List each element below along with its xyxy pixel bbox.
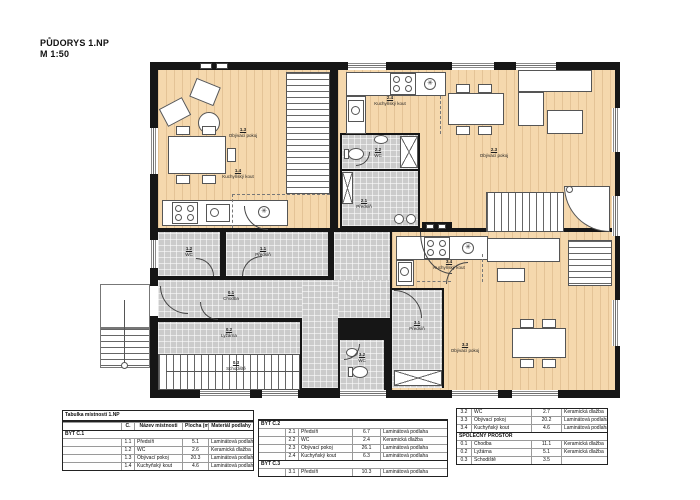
staircase-rail-line <box>166 371 300 372</box>
table-cell: Laminátová podlaha <box>561 425 607 432</box>
table-cell: Laminátová podlaha <box>561 417 607 424</box>
room-table-byt2-byt3: BYT Č.22.1Předsíň6.7Laminátová podlaha2.… <box>258 419 448 477</box>
table-cell: WC <box>134 447 182 454</box>
room-label: 3.3Obývací pokoj <box>433 342 497 353</box>
room-label: 2.4Kuchyňský kout <box>358 95 422 106</box>
stove-burner <box>175 214 182 221</box>
table-cell <box>63 463 121 470</box>
table-cell: Laminátová podlaha <box>380 469 447 476</box>
room-name: Předsíň <box>356 204 372 209</box>
table-cell: Kuchyňský kout <box>298 453 352 460</box>
stove-burner <box>393 76 400 83</box>
stove-burner <box>393 85 400 92</box>
room-name: Schodiště <box>226 366 246 371</box>
stove-burner <box>187 214 194 221</box>
table-section-row: BYT Č.1 <box>63 430 253 438</box>
table-section-row: BYT Č.3 <box>259 460 447 468</box>
room-name: Kuchyňský kout <box>222 174 254 179</box>
table-row: 3.1Předsíň10.3Laminátová podlaha <box>259 468 447 476</box>
table-row: 2.2WC2.4Keramická dlažba <box>259 436 447 444</box>
sink-bowl <box>210 208 219 217</box>
room-name: Obývací pokoj <box>480 153 509 158</box>
room-name: Předsíň <box>409 326 425 331</box>
table-row: 2.3Obývací pokoj26.1Laminátová podlaha <box>259 444 447 452</box>
table-cell: Předsíň <box>134 439 182 446</box>
stove-burner <box>187 205 194 212</box>
table-cell: Č. <box>121 423 134 430</box>
table-section-row: SPOLEČNÝ PROSTOR <box>457 432 607 440</box>
sofa <box>487 238 560 262</box>
table-cell: 3.2 <box>457 409 471 416</box>
table-cell: Kuchyňský kout <box>471 425 531 432</box>
sink-bowl <box>400 267 409 276</box>
washing-machine <box>394 214 404 224</box>
chair <box>542 319 556 328</box>
table-cell: 20.2 <box>531 417 561 424</box>
window <box>516 62 556 70</box>
table-row: 1.1Předsíň5.1Laminátová podlaha <box>63 438 253 446</box>
chair <box>176 175 190 184</box>
kitchen-zone-dash <box>482 254 483 282</box>
chimney-flue <box>426 224 434 229</box>
staircase-byt2 <box>486 192 564 232</box>
table-cell: 1.2 <box>121 447 134 454</box>
table-cell: Obývací pokoj <box>134 455 182 462</box>
chair <box>456 126 470 135</box>
table-section-label: BYT Č.2 <box>259 421 447 428</box>
stove-burner <box>405 76 412 83</box>
sofa-chaise <box>518 92 544 126</box>
room-name: Chodba <box>223 296 239 301</box>
table-section-label: SPOLEČNÝ PROSTOR <box>457 433 607 440</box>
table-cell: Keramická dlažba <box>561 449 607 456</box>
table-cell: Předsíň <box>298 469 352 476</box>
table-cell <box>561 457 607 464</box>
table-row: 0.3Schodiště3.5 <box>457 456 607 464</box>
stair-post <box>566 186 573 193</box>
table-row: 1.4Kuchyňský kout4.6Laminátová podlaha <box>63 462 253 470</box>
window <box>612 196 620 236</box>
kitchen-zone-dash <box>232 194 233 228</box>
window <box>150 128 158 174</box>
table-cell: 0.3 <box>457 457 471 464</box>
table-row: 1.3Obývací pokoj20.3Laminátová podlaha <box>63 454 253 462</box>
table-cell: Kuchyňský kout <box>134 463 182 470</box>
table-cell: 10.3 <box>352 469 380 476</box>
room-label: 3.1Předsíň <box>385 320 449 331</box>
table-cell: 4.6 <box>531 425 561 432</box>
table-cell <box>259 469 285 476</box>
table-row: 1.2WC2.6Keramická dlažba <box>63 446 253 454</box>
corridor-floor-south <box>302 282 338 388</box>
table-row: 3.4Kuchyňský kout4.6Laminátová podlaha <box>457 424 607 432</box>
room-name: Obývací pokoj <box>451 348 480 353</box>
table-cell: Keramická dlažba <box>561 409 607 416</box>
table-cell: 2.3 <box>285 445 298 452</box>
toilet-tank <box>348 367 353 377</box>
dining-table <box>448 93 504 125</box>
table-cell: Obývací pokoj <box>471 417 531 424</box>
table-cell <box>259 437 285 444</box>
table-cell: 5.1 <box>531 449 561 456</box>
table-section-label: BYT Č.3 <box>259 461 447 468</box>
stove-burner <box>405 85 412 92</box>
staircase-core-top <box>286 72 330 194</box>
table-row: 3.2WC2.7Keramická dlažba <box>457 409 607 416</box>
chair <box>542 359 556 368</box>
table-cell: 2.1 <box>285 429 298 436</box>
table-cell: 0.2 <box>457 449 471 456</box>
table-cell <box>259 453 285 460</box>
table-cell: 4.6 <box>182 463 208 470</box>
table-row: 0.2Lyžárna5.1Keramická dlažba <box>457 448 607 456</box>
room-name: WC <box>374 153 382 158</box>
room-name: Kuchyňský kout <box>433 265 465 270</box>
table-cell: WC <box>471 409 531 416</box>
table-cell: 0.1 <box>457 441 471 448</box>
table-cell: Lyžárna <box>471 449 531 456</box>
chimney-flue <box>216 63 228 69</box>
table-cell: Laminátová podlaha <box>208 439 253 446</box>
entrance-arrow-base <box>121 362 128 369</box>
room-label: 3.4Kuchyňský kout <box>417 259 481 270</box>
entrance-arrow-line <box>124 300 125 364</box>
table-cell: 1.1 <box>121 439 134 446</box>
window <box>200 390 250 398</box>
chair <box>176 126 190 135</box>
room-table-byt1: Tabulka místností 1.NPČ.Název místnostiP… <box>62 410 254 471</box>
table-cell: Plocha (m2) <box>182 423 208 430</box>
window <box>348 62 386 70</box>
table-cell: Keramická dlažba <box>380 437 447 444</box>
table-cell: Materiál podlahy <box>208 423 253 430</box>
washing-machine <box>406 214 416 224</box>
table-cell: 26.1 <box>352 445 380 452</box>
table-cell <box>63 455 121 462</box>
table-section-row: BYT Č.2 <box>259 420 447 428</box>
table-cell <box>259 429 285 436</box>
table-title: Tabulka místností 1.NP <box>63 411 253 422</box>
chair <box>520 319 534 328</box>
table-cell <box>63 447 121 454</box>
table-cell: Chodba <box>471 441 531 448</box>
table-cell: 3.3 <box>457 417 471 424</box>
room-label: 0.1Chodba <box>199 290 263 301</box>
window <box>512 390 558 398</box>
chair <box>478 126 492 135</box>
table-cell: 20.3 <box>182 455 208 462</box>
dining-table <box>512 328 566 358</box>
room-name: Kuchyňský kout <box>374 101 406 106</box>
table-cell: Laminátová podlaha <box>208 455 253 462</box>
room-name: Předsíň <box>255 252 271 257</box>
table-cell: 3.4 <box>457 425 471 432</box>
room-name: Lyžárna <box>221 333 237 338</box>
room-table-byt3-common: 3.2WC2.7Keramická dlažba3.3Obývací pokoj… <box>456 408 608 465</box>
stove-burner <box>175 205 182 212</box>
toilet <box>352 366 368 378</box>
table-cell: 2.6 <box>182 447 208 454</box>
window <box>340 390 386 398</box>
table-cell: Obývací pokoj <box>298 445 352 452</box>
chimney-flue <box>200 63 212 69</box>
corridor-floor-main <box>158 280 390 318</box>
room-label: 0.2Lyžárna <box>197 327 261 338</box>
table-cell <box>63 439 121 446</box>
table-cell: Laminátová podlaha <box>380 453 447 460</box>
sofa <box>518 70 592 92</box>
window <box>612 300 620 346</box>
table-cell: Keramická dlažba <box>208 447 253 454</box>
table-cell: 1.3 <box>121 455 134 462</box>
table-row: 3.3Obývací pokoj20.2Laminátová podlaha <box>457 416 607 424</box>
wardrobe <box>394 370 442 386</box>
room-label: 3.2WC <box>330 352 394 363</box>
table-section-label: BYT Č.1 <box>63 431 253 438</box>
table-cell: Název místnosti <box>134 423 182 430</box>
washbasin <box>374 135 388 144</box>
boiler-icon: ✳ <box>462 242 474 254</box>
staircase-byt3 <box>568 240 612 286</box>
boiler-icon: ✳ <box>424 78 436 90</box>
table-row: 0.1Chodba11.1Keramická dlažba <box>457 440 607 448</box>
table-cell: 2.2 <box>285 437 298 444</box>
window <box>452 390 498 398</box>
kitchen-zone-dash <box>232 194 330 195</box>
entrance-opening <box>150 286 158 316</box>
sink-bowl <box>351 106 360 115</box>
coffee-table <box>547 110 583 134</box>
table-cell: 3.5 <box>531 457 561 464</box>
table-cell: 1.4 <box>121 463 134 470</box>
table-header-row: Č.Název místnostiPlocha (m2)Materiál pod… <box>63 422 253 430</box>
floorplan-sheet: PŮDORYS 1.NP M 1:50 <box>0 0 700 500</box>
kitchen-zone-dash <box>440 96 441 134</box>
table-cell: Schodiště <box>471 457 531 464</box>
chair <box>456 84 470 93</box>
room-label: 0.3Schodiště <box>204 360 268 371</box>
coffee-table <box>497 268 525 282</box>
table-cell: Keramická dlažba <box>561 441 607 448</box>
table-cell: Laminátová podlaha <box>208 463 253 470</box>
room-name: Obývací pokoj <box>229 133 258 138</box>
table-cell: 2.4 <box>285 453 298 460</box>
window <box>612 108 620 152</box>
table-cell <box>259 445 285 452</box>
room-label: 1.4Kuchyňský kout <box>206 168 270 179</box>
chair <box>478 84 492 93</box>
chair <box>520 359 534 368</box>
room-label: 2.1Předsíň <box>332 198 396 209</box>
window <box>452 62 494 70</box>
room-name: WC <box>358 358 366 363</box>
chimney-flue <box>438 224 446 229</box>
room-label: 1.2WC <box>157 246 221 257</box>
table-cell: Laminátová podlaha <box>380 429 447 436</box>
table-cell: 6.3 <box>352 453 380 460</box>
room-label: 2.3Obývací pokoj <box>462 147 526 158</box>
chair <box>227 148 236 162</box>
table-row: 2.1Předsíň6.7Laminátová podlaha <box>259 428 447 436</box>
window <box>262 390 298 398</box>
entrance-landing <box>100 284 150 328</box>
table-cell: 3.1 <box>285 469 298 476</box>
table-cell: 6.7 <box>352 429 380 436</box>
table-cell: WC <box>298 437 352 444</box>
table-cell: Předsíň <box>298 429 352 436</box>
table-cell: 2.4 <box>352 437 380 444</box>
table-cell: Laminátová podlaha <box>380 445 447 452</box>
room-name: WC <box>185 252 193 257</box>
room-label: 2.2WC <box>346 147 410 158</box>
table-row: 2.4Kuchyňský kout6.3Laminátová podlaha <box>259 452 447 460</box>
table-cell: 5.1 <box>182 439 208 446</box>
room-label: 1.3Obývací pokoj <box>211 127 275 138</box>
table-cell: 2.7 <box>531 409 561 416</box>
room-label: 1.1Předsíň <box>231 246 295 257</box>
table-cell <box>63 423 121 430</box>
table-cell: 11.1 <box>531 441 561 448</box>
